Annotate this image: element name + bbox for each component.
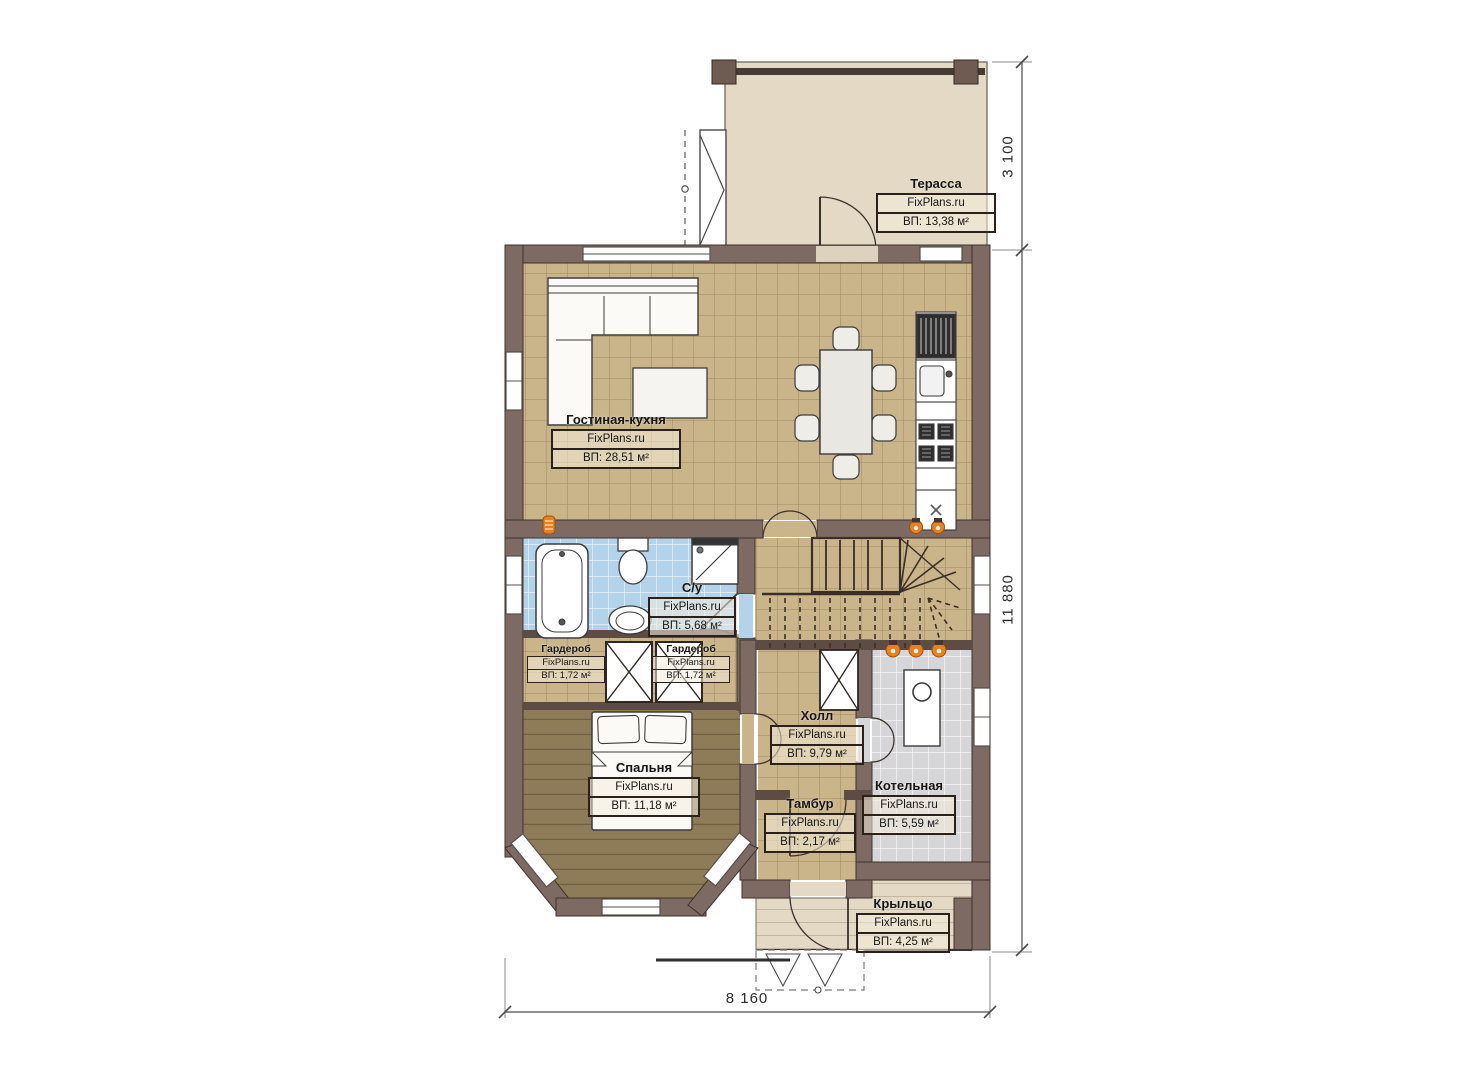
dimension-house-length: 11 880 [1000,535,1017,665]
room-label-hall: Холл FixPlans.ru ВП: 9,79 м² [770,708,864,765]
room-name: Тамбур [764,796,856,811]
wall-left [505,245,523,857]
room-label-wardrobe-left: Гардероб FixPlans.ru ВП: 1,72 м² [527,643,605,683]
opening-bathroom-door [739,594,753,638]
room-name: Спальня [588,760,700,775]
room-name: Гостиная-кухня [551,412,681,427]
wall-porch-right [954,898,972,950]
brand-watermark: FixPlans.ru [864,797,954,814]
toilet [618,538,648,584]
wall-top [505,245,990,263]
terrace-beam [727,68,985,75]
dimension-house-width: 8 160 [682,990,812,1007]
brand-watermark: FixPlans.ru [528,657,604,669]
room-name: Холл [770,708,864,723]
chair [872,365,896,391]
kitchen-sink [916,360,956,402]
chair [795,415,819,441]
room-info-box: FixPlans.ru ВП: 1,72 м² [652,656,730,683]
room-area: ВП: 5,68 м² [650,616,734,635]
wall-wardrobe-bottom [523,702,740,710]
exterior-stair [682,130,726,248]
room-info-box: FixPlans.ru ВП: 5,68 м² [648,597,736,637]
room-info-box: FixPlans.ru ВП: 28,51 м² [551,429,681,469]
brand-watermark: FixPlans.ru [772,727,862,744]
chair [795,365,819,391]
boiler-unit [904,670,940,746]
brand-watermark: FixPlans.ru [653,657,729,669]
room-area: ВП: 4,25 м² [858,932,948,951]
room-area: ВП: 28,51 м² [553,448,679,467]
brand-watermark: FixPlans.ru [878,195,994,212]
brand-watermark: FixPlans.ru [590,779,698,796]
room-info-box: FixPlans.ru ВП: 1,72 м² [527,656,605,683]
room-label-living-kitchen: Гостиная-кухня FixPlans.ru ВП: 28,51 м² [551,412,681,469]
wall-mid-right [817,520,990,538]
room-label-bedroom: Спальня FixPlans.ru ВП: 11,18 м² [588,760,700,817]
room-name: С/у [648,580,736,595]
hall-closet [820,650,858,710]
chair [872,415,896,441]
room-label-wardrobe-right: Гардероб FixPlans.ru ВП: 1,72 м² [652,643,730,683]
fridge [917,314,955,358]
opening-front-door [790,882,846,896]
room-label-terrace: Терасса FixPlans.ru ВП: 13,38 м² [876,176,996,233]
room-name: Гардероб [652,643,730,655]
gas-flame-icons [886,640,946,657]
brand-watermark: FixPlans.ru [766,815,854,832]
pillow [598,715,640,743]
shower-cabin [692,538,738,584]
chair [833,327,859,351]
room-name: Терасса [876,176,996,191]
room-area: ВП: 1,72 м² [653,669,729,682]
room-area: ВП: 2,17 м² [766,832,854,851]
wall-bath-stairs-upper [737,538,755,594]
kitchen-units [916,312,956,530]
wall-boiler-bottom [856,862,990,880]
room-name: Гардероб [527,643,605,655]
room-info-box: FixPlans.ru ВП: 13,38 м² [876,193,996,233]
room-area: ВП: 11,18 м² [590,796,698,815]
room-name: Котельная [862,778,956,793]
room-label-vestibule: Тамбур FixPlans.ru ВП: 2,17 м² [764,796,856,853]
brand-watermark: FixPlans.ru [553,431,679,448]
room-name: Крыльцо [856,896,950,911]
floor-plan-canvas: Терасса FixPlans.ru ВП: 13,38 м² Гостина… [0,0,1473,1080]
brand-watermark: FixPlans.ru [650,599,734,616]
room-info-box: FixPlans.ru ВП: 9,79 м² [770,725,864,765]
chair [833,455,859,479]
terrace-post-right [954,60,978,84]
porch-steps [656,950,972,993]
coffee-table [633,368,707,418]
cooktop-stove [916,420,956,468]
floor-plan-drawing [0,0,1473,1080]
window-top-kitchen [920,247,962,261]
room-label-porch: Крыльцо FixPlans.ru ВП: 4,25 м² [856,896,950,953]
bathtub [536,544,588,638]
towel-warmer-icon [543,516,555,534]
room-area: ВП: 13,38 м² [878,212,994,231]
brand-watermark: FixPlans.ru [858,915,948,932]
opening-terrace-door [816,246,878,262]
wall-stairs-hall [756,640,872,650]
washbasin [609,606,651,634]
opening-living-hall [763,521,817,537]
room-info-box: FixPlans.ru ВП: 11,18 м² [588,777,700,817]
room-label-boiler: Котельная FixPlans.ru ВП: 5,59 м² [862,778,956,835]
room-label-bathroom: С/у FixPlans.ru ВП: 5,68 м² [648,580,736,637]
room-area: ВП: 5,59 м² [864,814,954,833]
dining-table [820,350,872,454]
room-area: ВП: 1,72 м² [528,669,604,682]
opening-bedroom-door [742,714,754,764]
pillow [645,715,687,743]
wall-front-left [742,880,790,898]
wall-bedroom-hall-upper [740,640,756,714]
room-area: ВП: 9,79 м² [772,744,862,763]
room-info-box: FixPlans.ru ВП: 2,17 м² [764,813,856,853]
terrace-post-left [712,60,736,84]
room-info-box: FixPlans.ru ВП: 4,25 м² [856,913,950,953]
dimension-terrace-depth: 3 100 [1000,92,1017,222]
room-info-box: FixPlans.ru ВП: 5,59 м² [862,795,956,835]
